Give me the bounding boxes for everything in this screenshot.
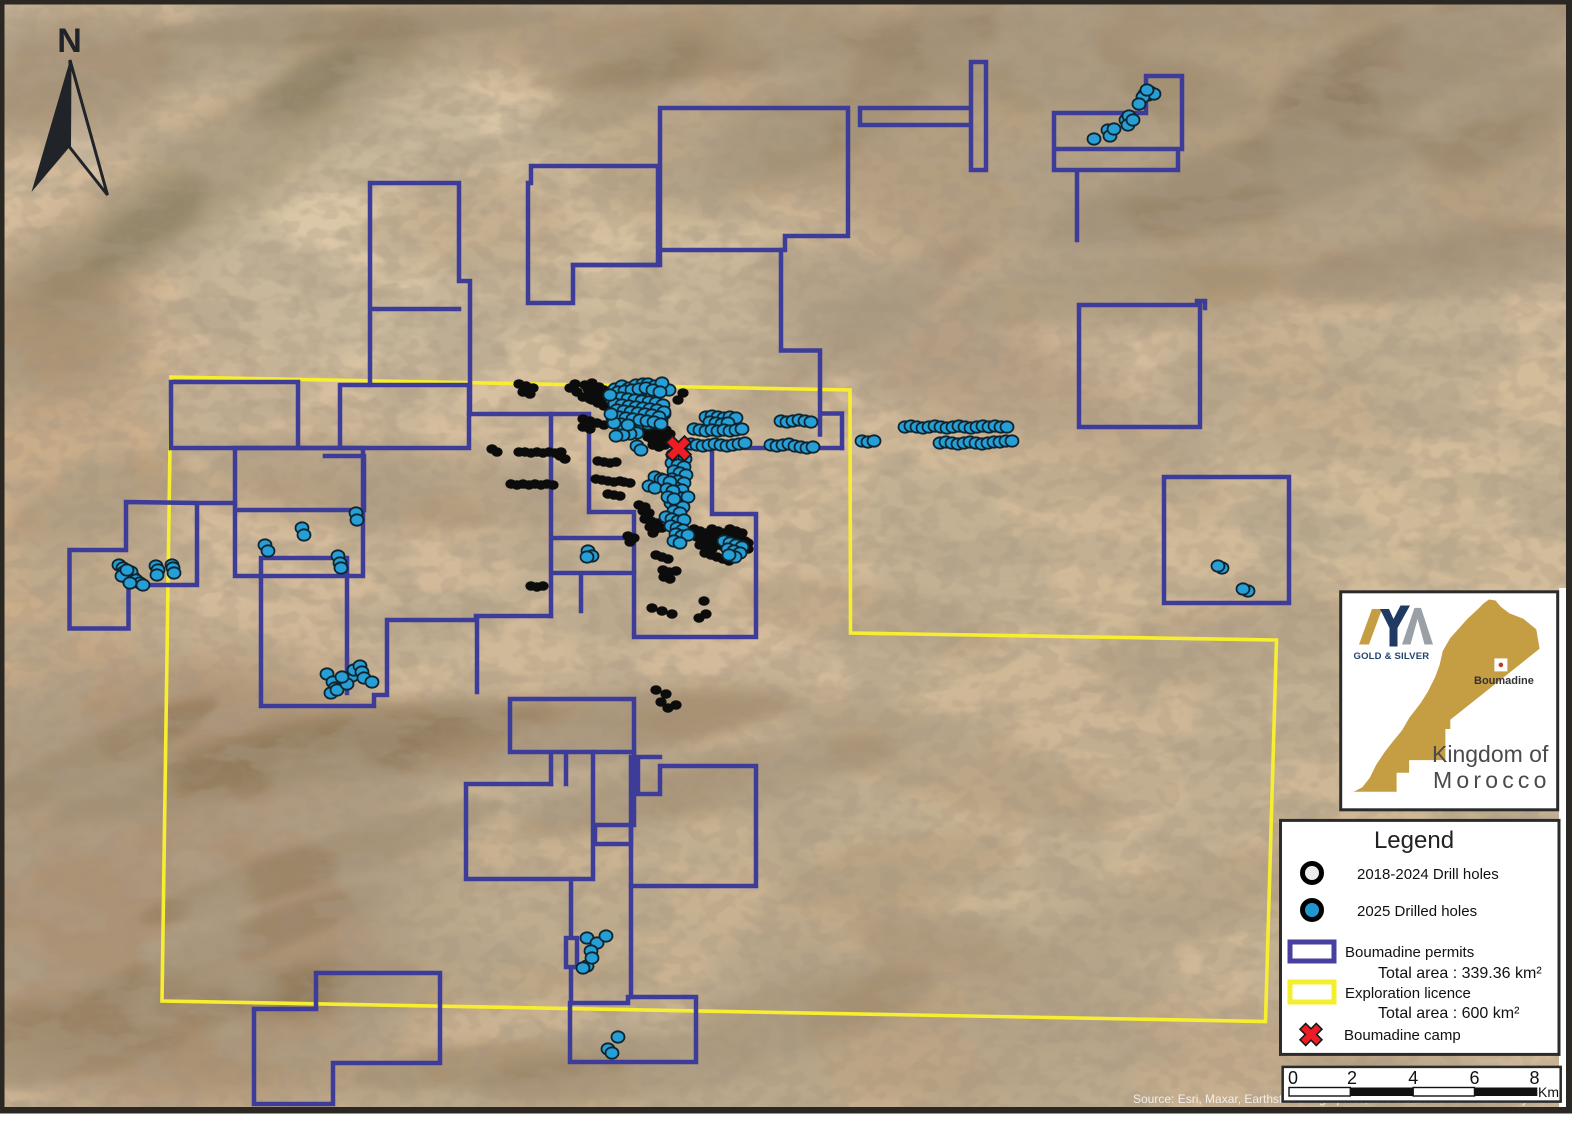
svg-text:4: 4 xyxy=(1408,1068,1418,1088)
svg-text:2018-2024 Drill holes: 2018-2024 Drill holes xyxy=(1357,866,1499,883)
svg-text:Legend: Legend xyxy=(1374,827,1454,854)
svg-text:Exploration licence: Exploration licence xyxy=(1345,985,1471,1002)
svg-text:Total area : 600 km²: Total area : 600 km² xyxy=(1378,1005,1520,1022)
svg-text:Km: Km xyxy=(1538,1084,1559,1100)
svg-text:Total area : 339.36 km²: Total area : 339.36 km² xyxy=(1378,965,1542,982)
svg-text:6: 6 xyxy=(1469,1068,1479,1088)
svg-text:N: N xyxy=(57,22,82,60)
svg-text:0: 0 xyxy=(1288,1068,1298,1088)
svg-text:Morocco: Morocco xyxy=(1433,767,1551,793)
svg-text:Kingdom of: Kingdom of xyxy=(1432,741,1549,767)
svg-text:Boumadine camp: Boumadine camp xyxy=(1344,1027,1461,1044)
svg-text:Boumadine permits: Boumadine permits xyxy=(1345,944,1474,961)
svg-text:2: 2 xyxy=(1347,1068,1357,1088)
svg-text:2025 Drilled holes: 2025 Drilled holes xyxy=(1357,903,1477,920)
svg-text:Boumadine: Boumadine xyxy=(1474,675,1534,687)
svg-text:GOLD & SILVER: GOLD & SILVER xyxy=(1354,651,1430,662)
